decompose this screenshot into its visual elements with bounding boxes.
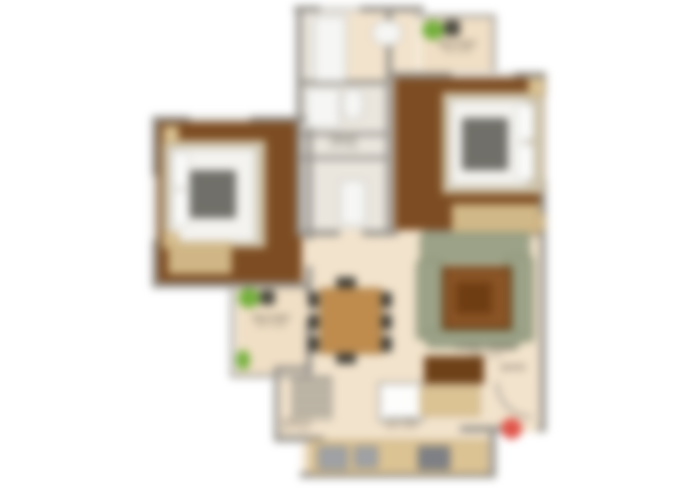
planter-pot-icon xyxy=(260,290,275,305)
living-name: LIVING / DINING xyxy=(456,345,516,352)
balcony-left-dims: 6'0" X 4'6" xyxy=(244,323,300,331)
washbasin-icon xyxy=(340,180,366,226)
wall-balcony-top-rail-top xyxy=(416,14,496,18)
kitchen-counter-right xyxy=(420,386,480,416)
kitchen-dims: 10'0" X 8'0" xyxy=(374,425,430,433)
wardrobe-left xyxy=(168,242,232,274)
bed-left-pillow-2 xyxy=(172,190,189,226)
nightstand-right-top xyxy=(528,78,545,96)
label-utility: UTILITY 4'0" X 6'0" xyxy=(272,418,322,435)
kitchen-name: KITCHEN xyxy=(385,417,419,424)
window-bedroom-right-top xyxy=(452,72,514,78)
tall-cabinet xyxy=(424,356,484,384)
plant-icon xyxy=(238,288,260,308)
dining-chair xyxy=(336,353,356,364)
toilet-dims: 7'0" X 4'6" xyxy=(306,145,382,153)
bed-left-blanket xyxy=(190,170,236,218)
label-balcony-left: BALCONY 6'0" X 4'6" xyxy=(244,314,300,331)
dining-chair xyxy=(381,292,392,308)
door-gap-toilet xyxy=(340,230,362,236)
dining-chair xyxy=(336,277,356,288)
bathtub-icon xyxy=(306,88,340,128)
plant-icon xyxy=(422,20,444,40)
nightstand-left-top xyxy=(163,126,179,143)
kitchen-stove-icon xyxy=(418,446,450,470)
kitchen-sink-icon xyxy=(318,446,348,470)
coffee-table xyxy=(456,282,492,314)
window-washroom-top xyxy=(320,6,360,12)
bed-left-pillow-1 xyxy=(172,152,189,188)
balcony-top-name: BALCONY xyxy=(439,41,476,48)
dining-chair xyxy=(308,314,319,330)
wall-balcony-left-rail-west xyxy=(230,284,234,378)
entry-name: ENTRY xyxy=(501,365,526,372)
wall-balcony-top-rail-right xyxy=(492,14,496,76)
dining-chair xyxy=(308,336,319,352)
bed-right-pillow-1 xyxy=(516,104,534,140)
door-gap-bedroom-left xyxy=(306,240,312,266)
utility-dims: 4'0" X 6'0" xyxy=(272,427,322,435)
balcony-top-dims: 7'6" X 4'0" xyxy=(430,49,486,57)
shower-cabin-icon xyxy=(314,16,346,82)
dining-chair xyxy=(381,336,392,352)
label-entry: ENTRY xyxy=(492,364,536,373)
dining-table xyxy=(320,288,382,354)
kitchen-appliance-icon xyxy=(354,446,378,468)
floorplan-image: BALCONY 7'6" X 4'0" TOILET 7'0" X 4'6" L… xyxy=(0,0,700,488)
toilet-wc-top-icon xyxy=(372,20,402,46)
label-balcony-top: BALCONY 7'6" X 4'0" xyxy=(430,40,486,57)
label-toilet: TOILET 7'0" X 4'6" xyxy=(306,136,382,153)
storage-shelf xyxy=(292,376,332,420)
sofa-left-arm xyxy=(416,260,444,340)
dining-chair xyxy=(381,314,392,330)
window-bedroom-left-top xyxy=(190,116,250,122)
label-kitchen: KITCHEN 10'0" X 8'0" xyxy=(374,416,430,433)
planter-pot-icon xyxy=(444,20,460,36)
wall-utility-top xyxy=(274,366,308,371)
plant-icon xyxy=(236,350,250,370)
dining-chair xyxy=(308,292,319,308)
utility-name: UTILITY xyxy=(282,419,311,426)
wall-kitchen-east xyxy=(490,426,496,478)
toilet-wc-mid-icon xyxy=(342,88,364,120)
floorplan-blurred-render: BALCONY 7'6" X 4'0" TOILET 7'0" X 4'6" L… xyxy=(0,0,700,488)
bed-right-blanket xyxy=(462,118,508,170)
wardrobe-right xyxy=(452,204,540,234)
bed-right-pillow-2 xyxy=(516,144,534,180)
window-bedroom-left-west xyxy=(152,176,158,240)
balcony-left-name: BALCONY xyxy=(253,315,290,322)
main-entrance-marker-icon xyxy=(501,418,522,439)
toilet-name: TOILET xyxy=(330,137,357,144)
